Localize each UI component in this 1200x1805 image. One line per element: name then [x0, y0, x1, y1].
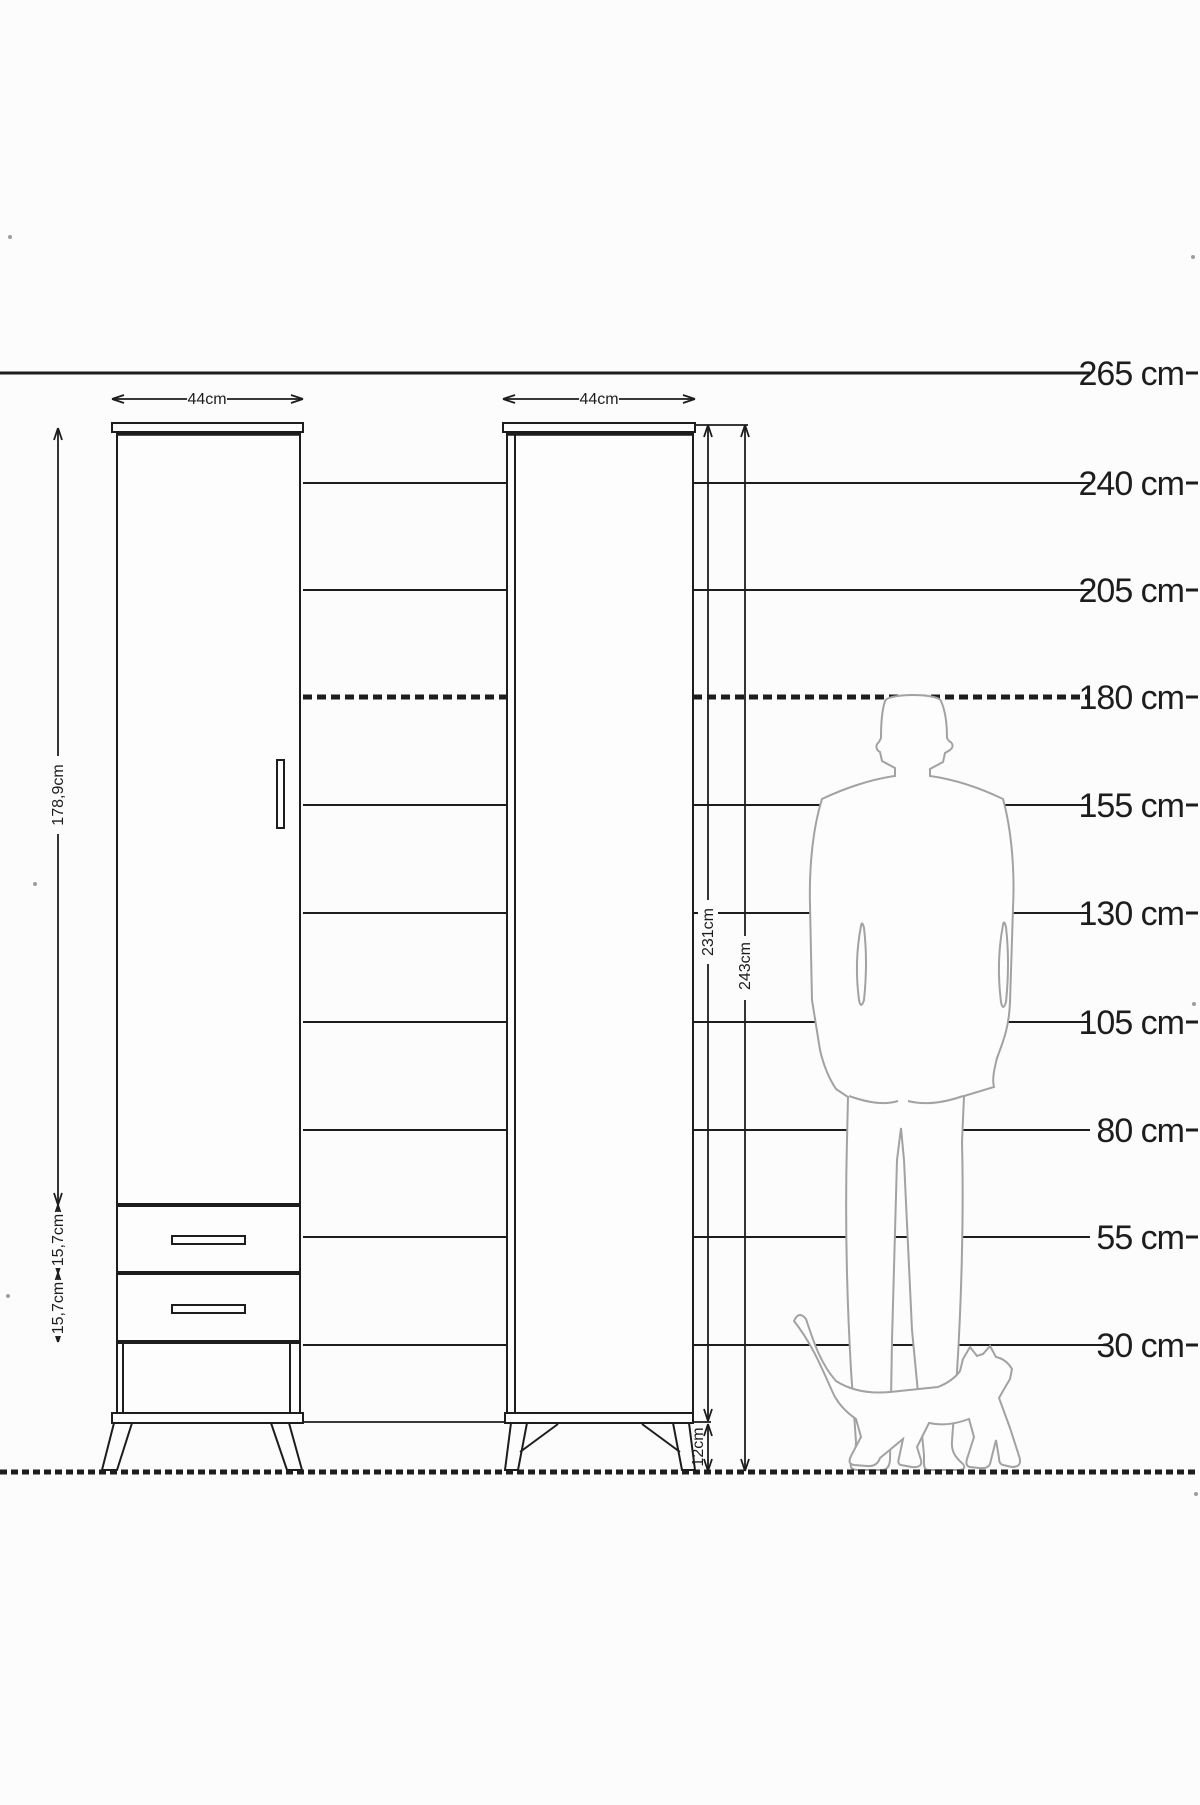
left-wardrobe-top-drawer-handle	[172, 1236, 245, 1244]
ruler-label-30: 30 cm	[1096, 1327, 1184, 1365]
left-width-label: 44cm	[187, 391, 226, 408]
left-wardrobe-door-handle	[277, 760, 284, 828]
left-wardrobe-right-leg	[271, 1423, 302, 1470]
right-wardrobe-top-panel	[503, 423, 695, 432]
left-wardrobe	[102, 423, 303, 1470]
left-height-dimension-chain	[54, 428, 62, 1342]
ruler-label-80: 80 cm	[1096, 1112, 1184, 1150]
height-ruler-labels: 265 cm 240 cm 205 cm 180 cm 155 cm 130 c…	[1079, 355, 1185, 1365]
cat-outline	[794, 1315, 1020, 1468]
left-wardrobe-bottom-drawer-handle	[172, 1305, 245, 1313]
wardrobe-scale-diagram: 265 cm 240 cm 205 cm 180 cm 155 cm 130 c…	[0, 0, 1200, 1800]
cat-silhouette	[794, 1315, 1020, 1468]
right-wardrobe-left-leg	[505, 1423, 527, 1470]
speck	[33, 882, 37, 886]
diagram-canvas: 265 cm 240 cm 205 cm 180 cm 155 cm 130 c…	[0, 0, 1200, 1800]
ruler-label-130: 130 cm	[1079, 895, 1185, 933]
ruler-label-155: 155 cm	[1079, 787, 1185, 825]
left-wardrobe-plinth	[112, 1413, 303, 1423]
ruler-label-55: 55 cm	[1096, 1219, 1184, 1257]
ruler-label-180: 180 cm	[1079, 679, 1185, 717]
speck	[6, 1294, 10, 1298]
ruler-label-240: 240 cm	[1079, 465, 1185, 503]
left-wardrobe-top-panel	[112, 423, 303, 432]
speck	[1194, 1492, 1198, 1496]
ruler-label-205: 205 cm	[1079, 572, 1185, 610]
bottom-drawer-height-label: 15,7cm	[50, 1282, 67, 1334]
right-wardrobe	[503, 423, 695, 1470]
total-height-label: 243cm	[737, 942, 754, 990]
ruler-label-265: 265 cm	[1079, 355, 1185, 393]
top-drawer-height-label: 15,7cm	[50, 1214, 67, 1266]
leg-height-label: 12cm	[690, 1427, 707, 1466]
speck	[1192, 1002, 1196, 1006]
right-width-label: 44cm	[579, 391, 618, 408]
left-wardrobe-body	[117, 432, 300, 1413]
cabinet-height-label: 231cm	[700, 908, 717, 956]
ruler-right-ticks	[1186, 373, 1198, 1345]
right-wardrobe-plinth	[505, 1413, 693, 1423]
ruler-label-105: 105 cm	[1079, 1004, 1185, 1042]
door-height-label: 178,9cm	[50, 764, 67, 825]
speck	[8, 235, 12, 239]
left-wardrobe-left-leg	[102, 1423, 132, 1470]
speck	[1191, 255, 1195, 259]
right-wardrobe-body	[507, 432, 693, 1413]
